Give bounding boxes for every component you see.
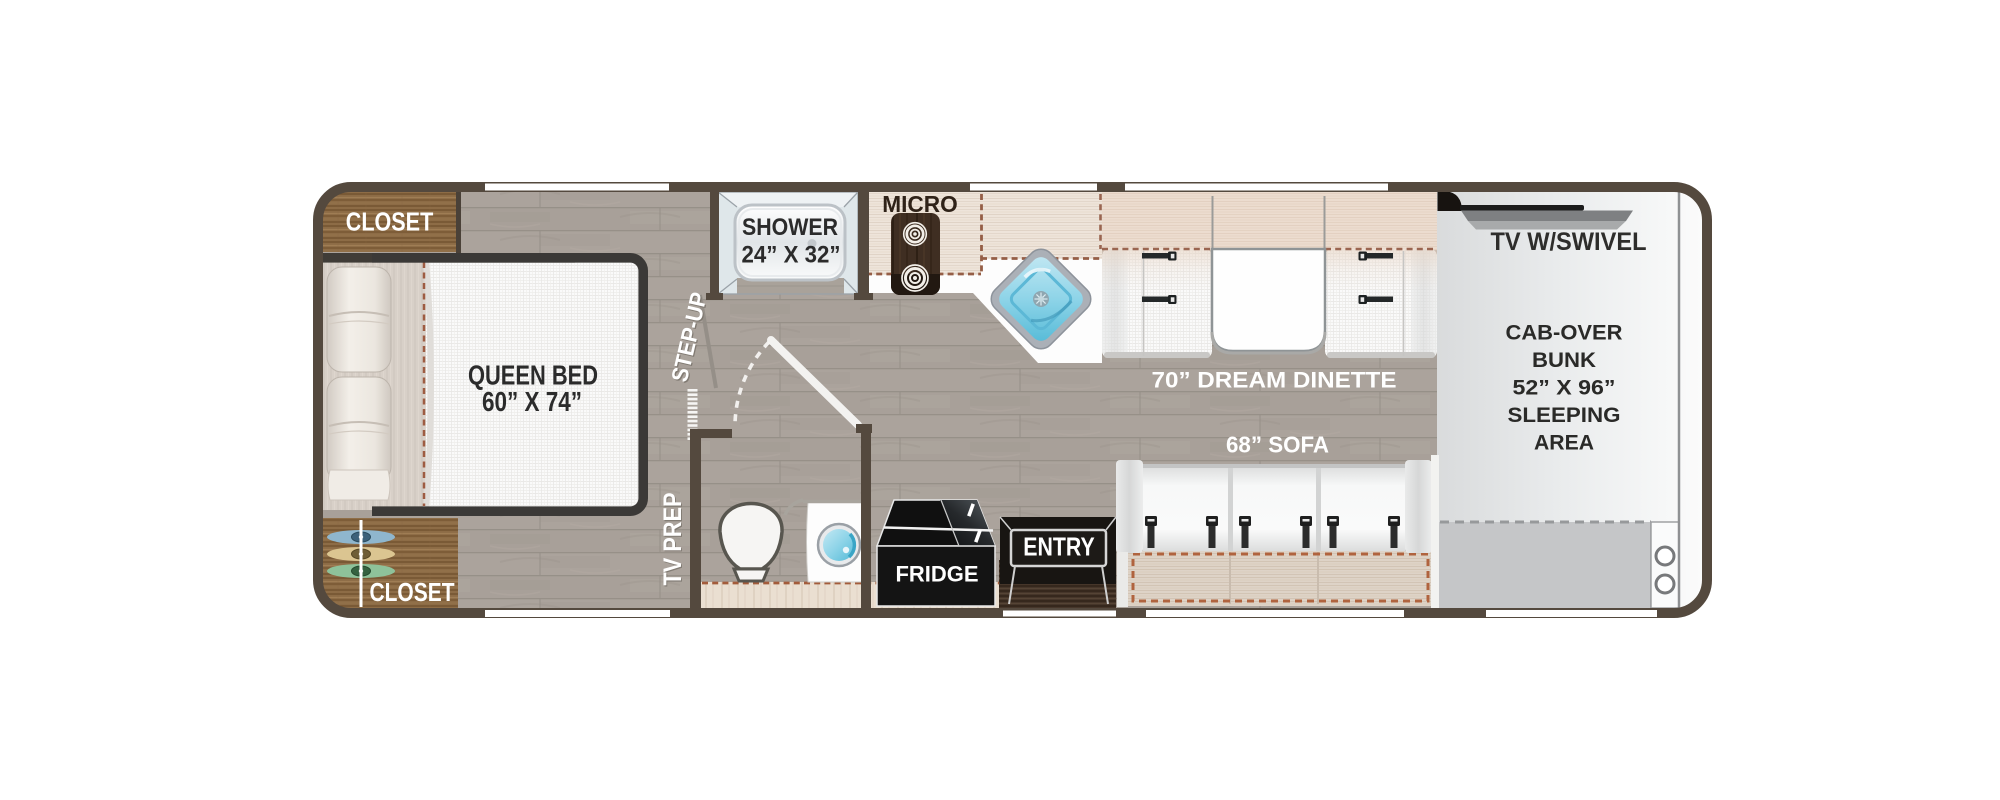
svg-text:MICRO: MICRO <box>882 191 958 217</box>
svg-text:24” X 32”: 24” X 32” <box>742 242 841 269</box>
svg-text:60” X 74”: 60” X 74” <box>482 386 582 417</box>
svg-text:TV PREP: TV PREP <box>659 493 687 586</box>
svg-text:ENTRY: ENTRY <box>1023 532 1095 562</box>
svg-text:SLEEPING: SLEEPING <box>1508 404 1621 427</box>
svg-text:CLOSET: CLOSET <box>370 577 455 607</box>
svg-text:TV W/SWIVEL: TV W/SWIVEL <box>1491 228 1647 256</box>
svg-text:CAB-OVER: CAB-OVER <box>1506 322 1623 345</box>
svg-text:70” DREAM DINETTE: 70” DREAM DINETTE <box>1152 368 1397 393</box>
svg-text:CLOSET: CLOSET <box>346 207 434 237</box>
svg-text:SHOWER: SHOWER <box>742 214 838 241</box>
svg-text:52” X 96”: 52” X 96” <box>1513 377 1616 400</box>
svg-text:68” SOFA: 68” SOFA <box>1226 432 1329 458</box>
svg-text:FRIDGE: FRIDGE <box>896 562 979 587</box>
svg-text:BUNK: BUNK <box>1532 349 1596 372</box>
svg-text:AREA: AREA <box>1534 432 1594 455</box>
